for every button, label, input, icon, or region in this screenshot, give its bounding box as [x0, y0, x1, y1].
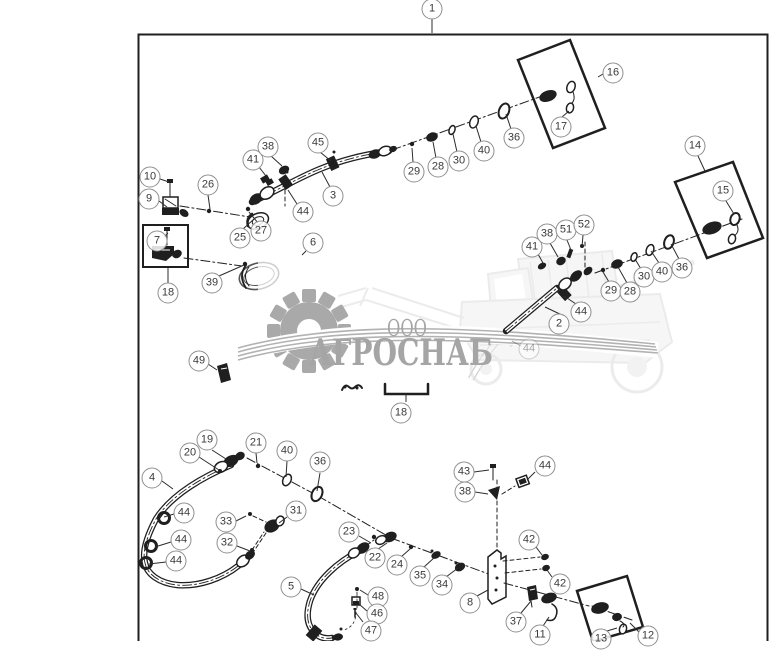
callout-38[interactable]: 38: [258, 137, 279, 158]
callout-19[interactable]: 19: [197, 430, 218, 451]
part-26-washer: [207, 209, 211, 213]
callout-18[interactable]: 18: [158, 283, 179, 304]
callout-44[interactable]: 44: [174, 503, 195, 524]
callout-44[interactable]: 44: [171, 530, 192, 551]
part-42-screw-b: [541, 564, 551, 572]
callout-38[interactable]: 38: [455, 482, 476, 503]
callout-44[interactable]: 44: [535, 456, 556, 477]
part-24-washer: [409, 545, 413, 549]
callout-47[interactable]: 47: [361, 621, 382, 642]
part-37-clip: [527, 585, 538, 601]
callout-35[interactable]: 35: [410, 566, 431, 587]
callout-26[interactable]: 26: [198, 175, 219, 196]
parts-diagram-page: { "watermark": { "prefix": "ООО", "name"…: [0, 0, 781, 641]
callout-30[interactable]: 30: [449, 151, 470, 172]
part-10-bolt: [167, 179, 173, 183]
callout-38[interactable]: 38: [537, 224, 558, 245]
callout-15[interactable]: 15: [713, 181, 734, 202]
part-16-fitting: [538, 88, 559, 104]
diagram-line-art: ООО АГРОСНАБ: [0, 0, 781, 641]
part-17-ring: [565, 102, 574, 113]
watermark-company-name: АГРОСНАБ: [309, 332, 493, 374]
part-49-pad: [217, 363, 231, 383]
callout-36[interactable]: 36: [310, 452, 331, 473]
callout-49[interactable]: 49: [189, 351, 210, 372]
part-15-ring: [729, 212, 742, 227]
part-27-washer: [246, 207, 250, 211]
part-43-bolt: [490, 464, 496, 468]
callout-6[interactable]: 6: [303, 233, 324, 254]
detail-box-14: [675, 162, 763, 258]
callout-13[interactable]: 13: [591, 629, 612, 650]
callout-10[interactable]: 10: [140, 167, 161, 188]
callout-11[interactable]: 11: [530, 625, 551, 646]
callout-21[interactable]: 21: [246, 433, 267, 454]
callout-14[interactable]: 14: [685, 136, 706, 157]
centerline-lower: [391, 538, 494, 576]
callout-9[interactable]: 9: [139, 189, 160, 210]
callout-22[interactable]: 22: [365, 548, 386, 569]
part-21-washer: [256, 464, 260, 468]
callout-31[interactable]: 31: [286, 501, 307, 522]
part-38-nut-bottom: [488, 486, 500, 500]
callout-7[interactable]: 7: [147, 231, 168, 252]
callout-52[interactable]: 52: [574, 215, 595, 236]
callout-29[interactable]: 29: [404, 162, 425, 183]
callout-36[interactable]: 36: [672, 258, 693, 279]
part-12-fitting: [590, 600, 610, 615]
part-36-ring: [497, 102, 512, 120]
detail-box-12: [577, 576, 643, 641]
callout-43[interactable]: 43: [454, 462, 475, 483]
callout-40[interactable]: 40: [474, 141, 495, 162]
callout-3[interactable]: 3: [323, 186, 344, 207]
part-32-washer: [250, 548, 254, 552]
hose-3-assembly: [247, 80, 576, 207]
part-33-washer: [248, 512, 252, 516]
callout-32[interactable]: 32: [217, 533, 238, 554]
callout-12[interactable]: 12: [638, 626, 659, 647]
callout-44[interactable]: 44: [166, 551, 187, 572]
callout-4[interactable]: 4: [142, 468, 163, 489]
callout-40[interactable]: 40: [652, 262, 673, 283]
callout-5[interactable]: 5: [281, 577, 302, 598]
callout-44[interactable]: 44: [293, 202, 314, 223]
callout-18[interactable]: 18: [391, 403, 412, 424]
callout-42[interactable]: 42: [550, 574, 571, 595]
callout-25[interactable]: 25: [230, 228, 251, 249]
part-48-washer: [355, 587, 359, 591]
callout-2[interactable]: 2: [549, 314, 570, 335]
callout-27[interactable]: 27: [251, 221, 272, 242]
part-38-nut: [277, 164, 291, 176]
callout-17[interactable]: 17: [551, 117, 572, 138]
callout-8[interactable]: 8: [460, 593, 481, 614]
callout-23[interactable]: 23: [339, 522, 360, 543]
bracket-8-assembly: [488, 464, 632, 635]
callout-36[interactable]: 36: [504, 128, 525, 149]
callout-45[interactable]: 45: [308, 133, 329, 154]
callout-28[interactable]: 28: [428, 157, 449, 178]
callout-29[interactable]: 29: [601, 281, 622, 302]
part-36-ring-lower: [309, 485, 324, 503]
part-23-washer: [372, 535, 376, 539]
callout-37[interactable]: 37: [506, 612, 527, 633]
part-29-washer: [410, 142, 414, 146]
bracket-18-symbol: [342, 384, 428, 402]
callout-24[interactable]: 24: [387, 555, 408, 576]
part-40-ring-lower: [281, 473, 293, 487]
callout-42[interactable]: 42: [519, 530, 540, 551]
callout-44[interactable]: 44: [519, 339, 540, 360]
part-28-nut: [425, 131, 439, 144]
part-30-ring: [448, 125, 456, 136]
callout-34[interactable]: 34: [432, 575, 453, 596]
callout-40[interactable]: 40: [277, 441, 298, 462]
part-14-fitting: [701, 219, 724, 237]
callout-39[interactable]: 39: [202, 273, 223, 294]
callout-16[interactable]: 16: [603, 63, 624, 84]
callout-33[interactable]: 33: [216, 512, 237, 533]
callout-44[interactable]: 44: [571, 302, 592, 323]
part-40-ring: [468, 115, 480, 129]
